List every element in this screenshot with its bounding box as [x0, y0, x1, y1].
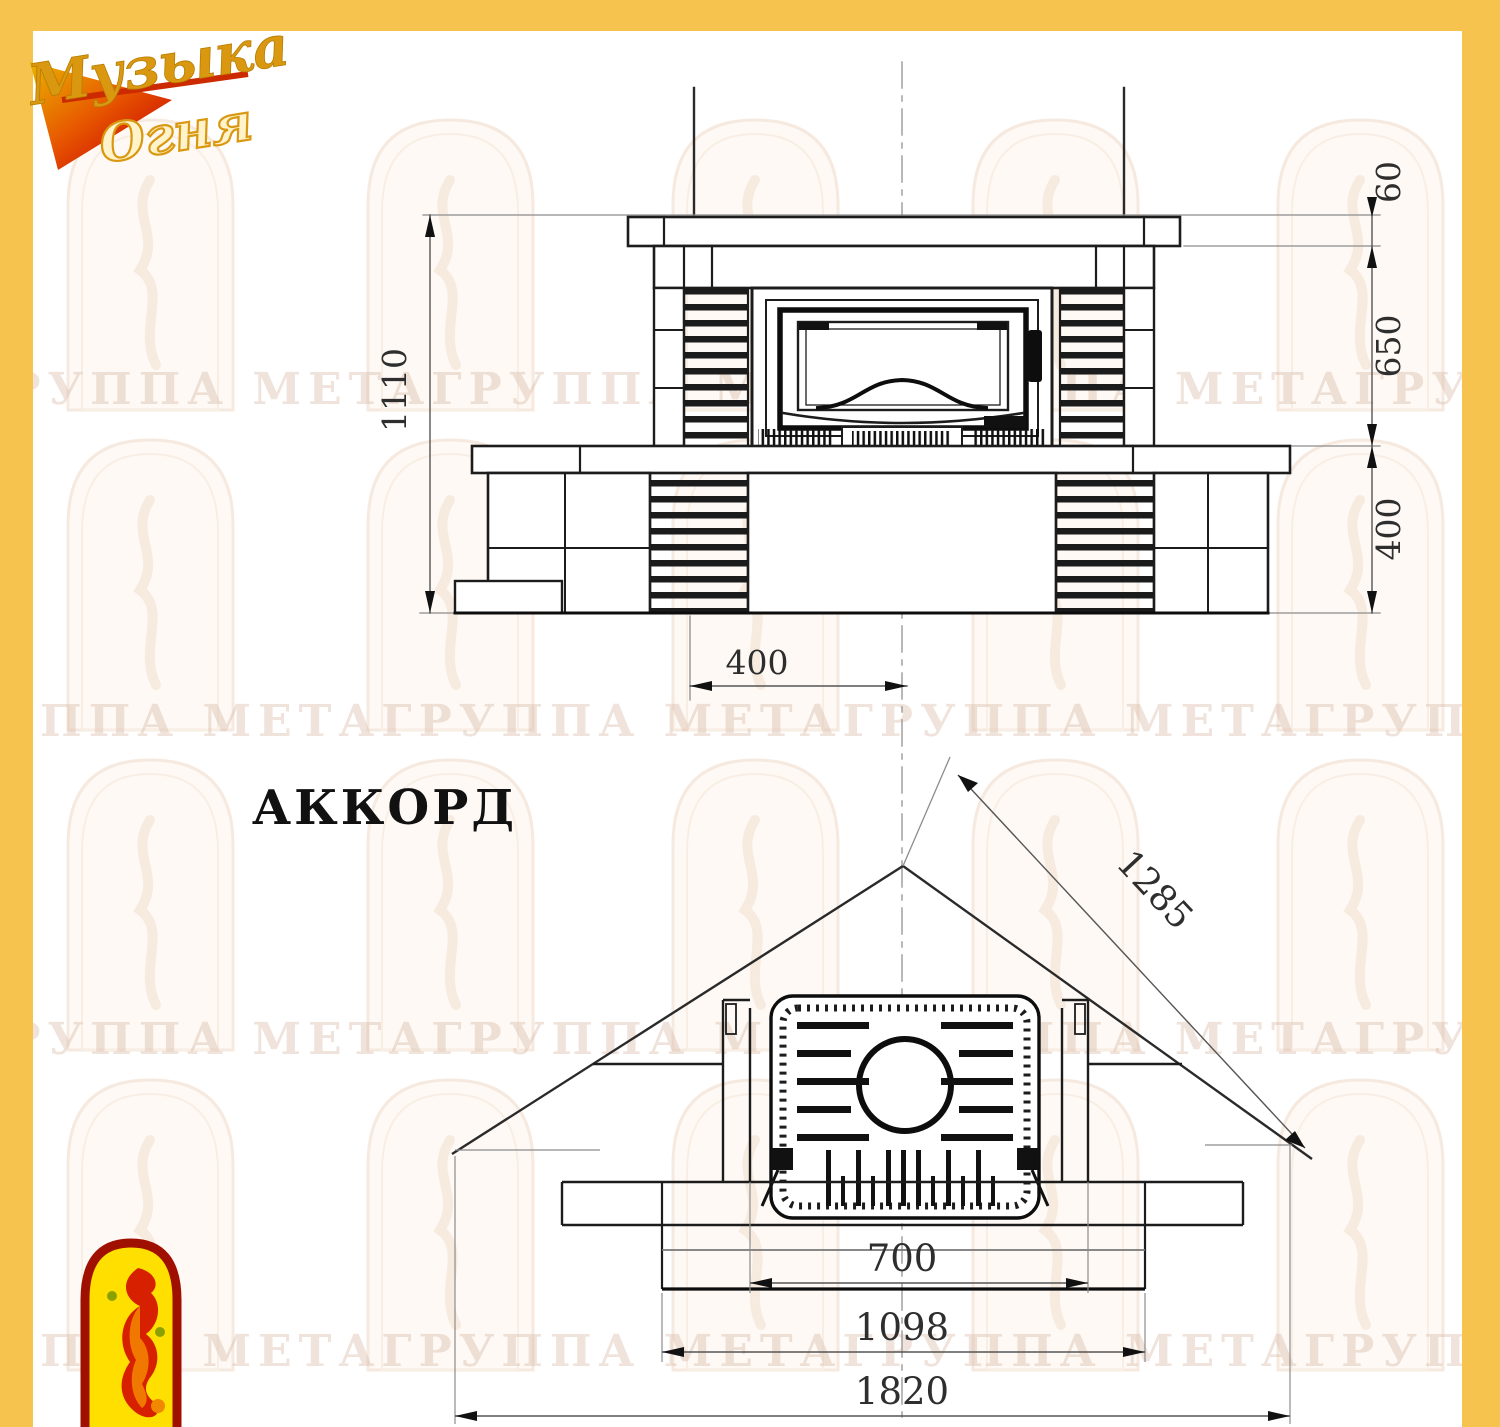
base-right-block	[1154, 473, 1268, 613]
dim-label-60: 60	[1369, 161, 1408, 203]
dim-label-1110: 1110	[375, 348, 414, 432]
door-handle	[1028, 330, 1042, 382]
left-column-stone	[684, 288, 748, 446]
glass-corner-left	[799, 322, 829, 330]
border-left	[0, 0, 33, 1427]
right-pilaster	[1124, 288, 1154, 446]
hearth-shelf	[472, 446, 1290, 473]
base-right-stone	[1056, 473, 1154, 613]
base-pedestal	[748, 473, 1056, 613]
dim-label-400-bottom: 400	[726, 643, 789, 682]
watermark-row: ГРУППА МЕТАГРУППА МЕТАГРУППА МЕТАГРУППА …	[0, 364, 1500, 415]
dim-label-400-right: 400	[1369, 498, 1408, 561]
emblem-spark-1	[107, 1291, 117, 1301]
emblem-spark-3	[151, 1399, 165, 1413]
door-bottom-dark	[984, 416, 1026, 428]
vent-grille-center	[852, 431, 952, 445]
insert-plan	[762, 996, 1048, 1218]
left-pilaster	[654, 288, 684, 446]
clamp-right	[1017, 1148, 1039, 1170]
emblem-spark-2	[155, 1327, 165, 1337]
door-glass	[798, 322, 1008, 410]
mantel-shelf	[628, 217, 1180, 246]
dim-label-1098: 1098	[855, 1306, 949, 1349]
clamp-left	[771, 1148, 793, 1170]
glass-corner-right	[977, 322, 1007, 330]
catalog-page: ГРУППА МЕТАГРУППА МЕТАГРУППА МЕТАГРУППА …	[0, 0, 1500, 1427]
firebox	[752, 288, 1052, 448]
base	[455, 473, 1268, 613]
border-right	[1462, 0, 1500, 1427]
right-column-stone	[1060, 288, 1124, 446]
dim-label-1820: 1820	[855, 1370, 949, 1413]
model-title: АККОРД	[252, 780, 517, 836]
dim-label-650: 650	[1369, 315, 1408, 378]
dim-label-700: 700	[867, 1237, 938, 1280]
flame-emblem	[85, 1243, 177, 1427]
fascia-panel	[654, 246, 1154, 288]
watermark-row: ГРУППА МЕТАГРУППА МЕТАГРУППА МЕТАГРУППА …	[0, 696, 1500, 747]
base-left-stone	[650, 473, 748, 613]
base-left-step	[455, 581, 562, 613]
flue-circle	[859, 1039, 951, 1131]
